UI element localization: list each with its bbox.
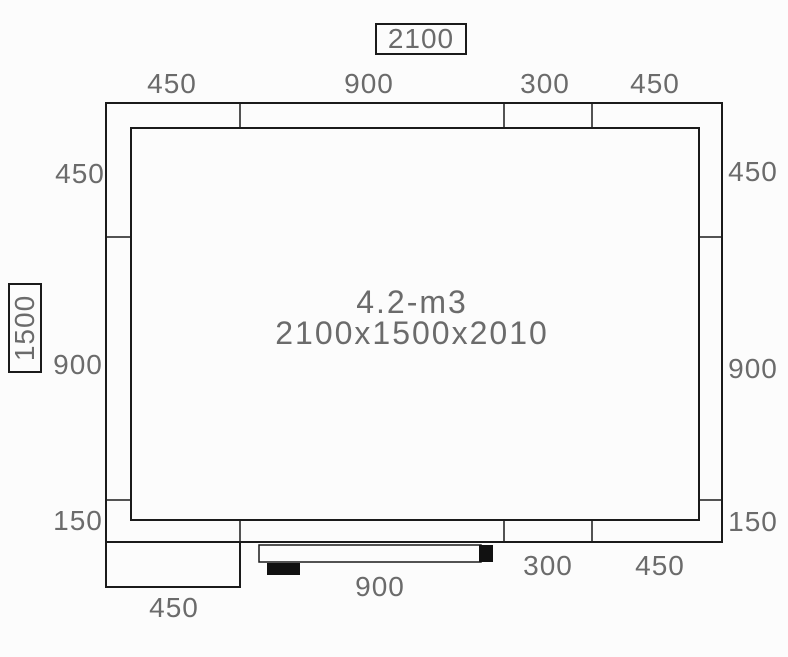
door-handle-block [267, 563, 300, 575]
room-size-label: 2100x1500x2010 [275, 317, 549, 349]
overall-width-dim-label: 2100 [388, 25, 454, 53]
left-dim-900: 900 [53, 351, 103, 379]
bottom-dim-300: 300 [523, 552, 573, 580]
left-dim-150: 150 [53, 507, 103, 535]
top-dim-450-left: 450 [147, 70, 197, 98]
right-dim-900: 900 [728, 355, 778, 383]
door-leaf [259, 545, 481, 562]
top-dim-300: 300 [520, 70, 570, 98]
overall-depth-dim-label: 1500 [11, 295, 39, 361]
left-dim-450: 450 [55, 160, 105, 188]
overall-width-dim-box: 2100 [375, 23, 467, 55]
right-dim-150: 150 [728, 508, 778, 536]
room-volume-label: 4.2-m3 [356, 286, 468, 318]
bottom-dim-450: 450 [635, 552, 685, 580]
bottom-left-panel [106, 542, 240, 587]
floor-plan-drawing: 2100 1500 450 900 300 450 450 900 150 45… [0, 0, 788, 657]
door-end-block [479, 545, 493, 562]
bottom-dim-900-door: 900 [355, 573, 405, 601]
right-dim-450: 450 [728, 158, 778, 186]
top-dim-450-right: 450 [630, 70, 680, 98]
overall-depth-dim-box: 1500 [8, 283, 42, 373]
top-dim-900: 900 [344, 70, 394, 98]
bottom-left-panel-dim-450: 450 [149, 594, 199, 622]
